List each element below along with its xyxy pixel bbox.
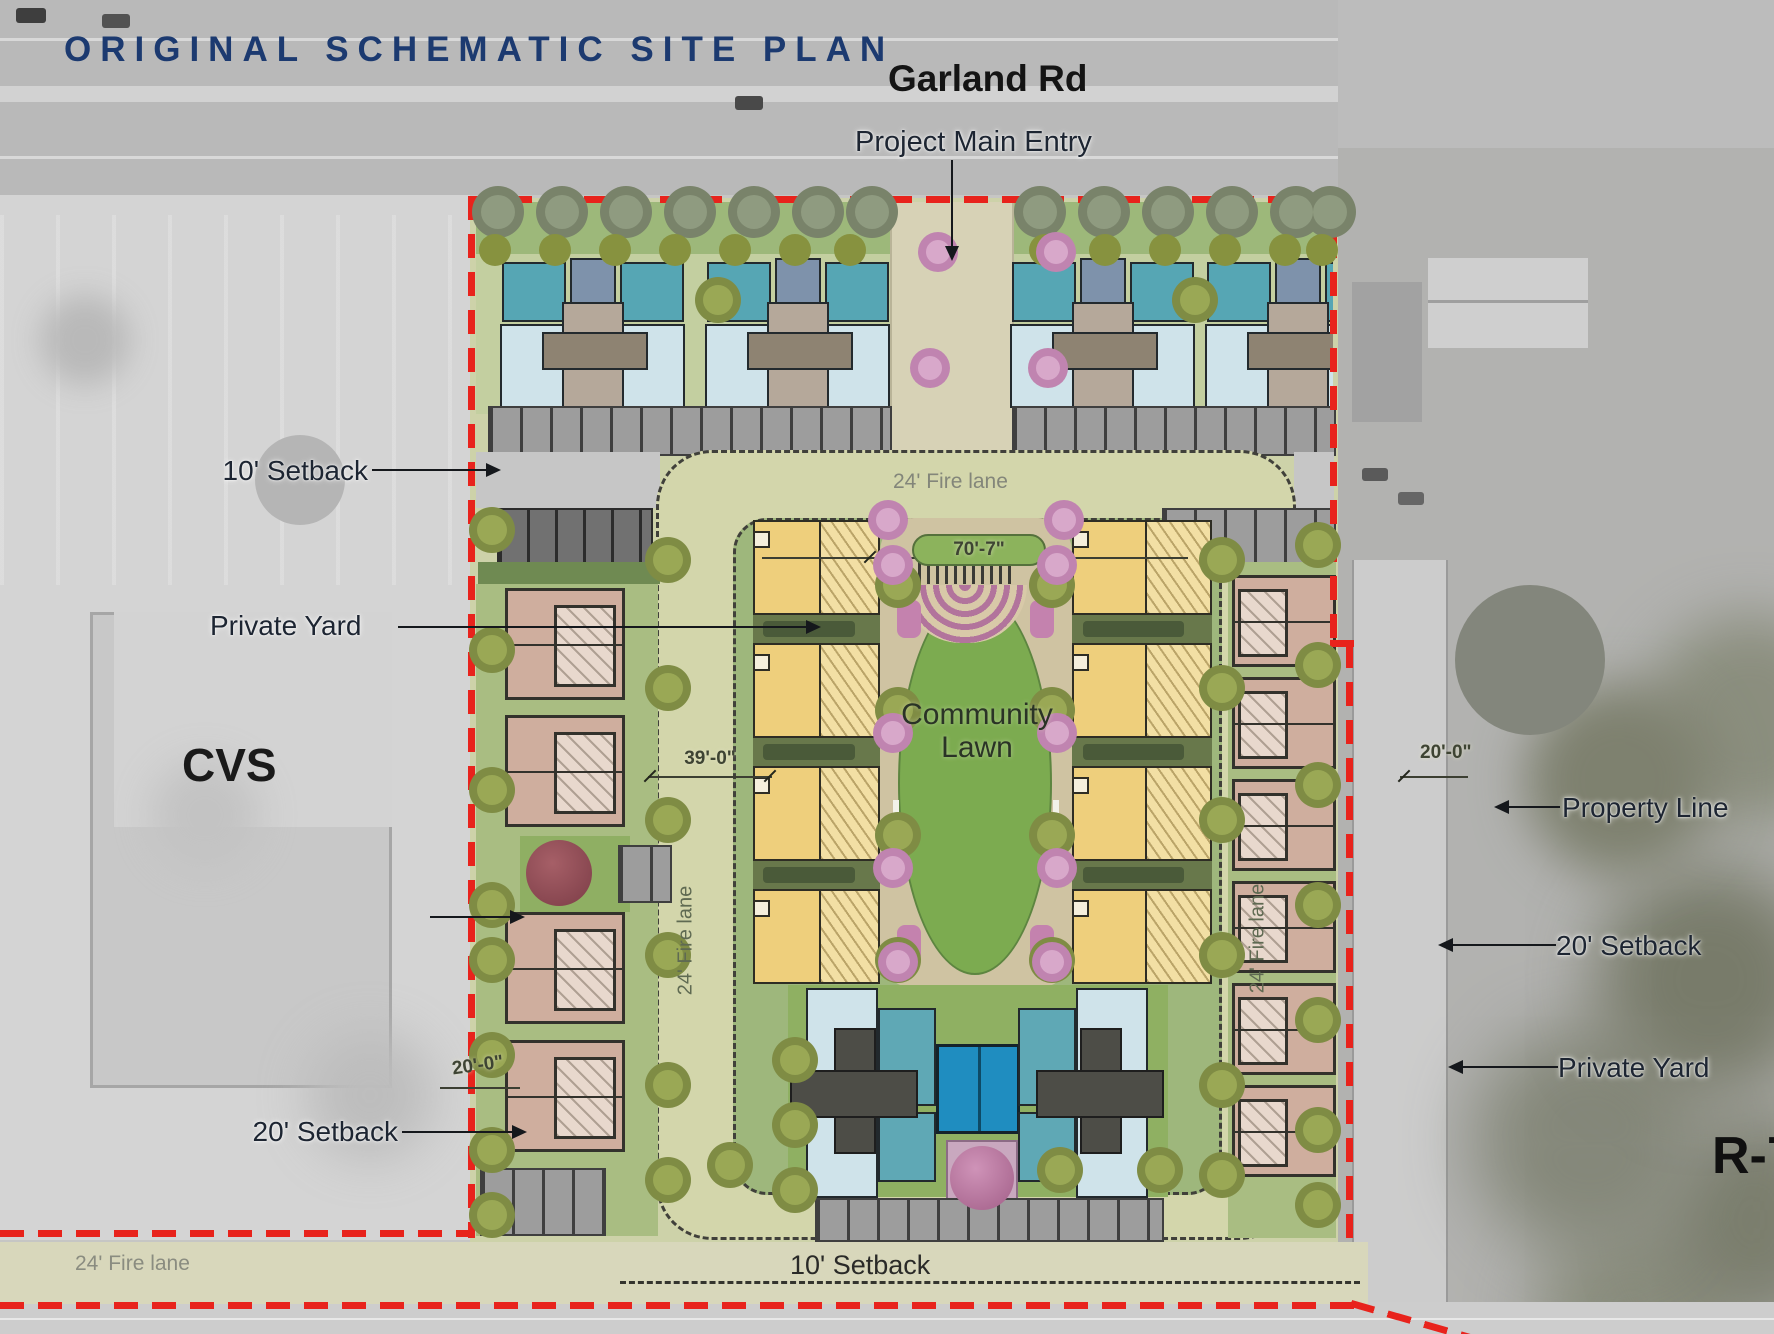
duplex-unit	[1232, 779, 1336, 871]
property-line-label: Property Line	[1562, 792, 1729, 824]
tree-icon-highlight	[477, 515, 507, 545]
arrow-head	[512, 1125, 527, 1139]
car-icon	[1362, 468, 1388, 481]
car-icon	[1398, 492, 1424, 505]
duplex-unit	[1232, 575, 1336, 667]
duplex-unit	[1232, 677, 1336, 769]
private-yard-right-label: Private Yard	[1558, 1052, 1709, 1084]
zoning-r7-label: R-7	[1712, 1126, 1774, 1186]
leader-line	[402, 1131, 512, 1133]
flower-bed	[897, 600, 921, 638]
fire-lane-right-vertical-label: 24' Fire lane	[1247, 859, 1270, 1019]
property-line-red	[470, 196, 1338, 203]
setback-right-dimension: 20'-0"	[1420, 742, 1472, 764]
drive-aisle	[476, 452, 660, 508]
bottom-fire-lane-strip	[0, 1242, 1368, 1304]
leader-line	[1462, 1066, 1558, 1068]
flowering-tree-icon	[950, 1146, 1014, 1210]
car-icon	[16, 8, 46, 23]
arrow-head	[806, 620, 821, 634]
flower-bed	[897, 925, 921, 963]
car-icon	[735, 96, 763, 110]
setback-20-right-label: 20' Setback	[1556, 930, 1701, 962]
amenity-building	[1018, 1112, 1076, 1182]
community-lawn-oval	[898, 592, 1052, 975]
property-line-red	[0, 1302, 1368, 1309]
amenity-building	[878, 1112, 936, 1182]
aerial-parking-stripes	[0, 215, 460, 585]
flower-bed	[1030, 600, 1054, 638]
page-title: ORIGINAL SCHEMATIC SITE PLAN	[64, 30, 984, 70]
cvs-label: CVS	[182, 738, 277, 792]
aerial-right-vegetation	[1455, 585, 1605, 735]
drive-aisle	[1294, 452, 1334, 508]
parking-row	[497, 508, 653, 568]
hedge	[478, 562, 660, 584]
site-plan-screenshot: 70'-7" 39'-0" ORIGINAL SCHEMATIC SITE PL…	[0, 0, 1774, 1334]
aerial-bottom-curb	[0, 1318, 1774, 1320]
leader-line	[372, 469, 486, 471]
aerial-right-barn	[1428, 258, 1588, 348]
dimension-line	[1400, 776, 1468, 778]
leader-line	[1508, 806, 1560, 808]
project-main-entry-label: Project Main Entry	[855, 126, 1092, 159]
aerial-right-barn-ridge	[1428, 300, 1588, 303]
fire-lane-top-label: 24' Fire lane	[893, 470, 1008, 494]
private-yard-strip	[753, 738, 880, 766]
community-lawn-label: Community Lawn	[898, 698, 1056, 764]
bench	[893, 800, 899, 824]
townhome-building	[1010, 258, 1195, 410]
leader-line	[398, 626, 806, 628]
townhome-yellow	[1072, 766, 1212, 861]
red-tree-icon	[526, 840, 592, 906]
private-yard-strip	[753, 861, 880, 889]
lawn-width-dimension: 70'-7"	[912, 539, 1046, 561]
townhome-building	[705, 258, 890, 410]
parking-row	[480, 1168, 606, 1236]
dimension-arrow-line	[430, 916, 514, 918]
parking-row	[1012, 406, 1336, 456]
setback-10-bottom-label: 10' Setback	[790, 1250, 930, 1281]
cvs-building-roof	[114, 612, 392, 827]
arrow-head	[510, 910, 525, 924]
arrow-head	[1448, 1060, 1463, 1074]
property-line-red	[468, 196, 475, 1238]
duplex-unit	[505, 588, 625, 700]
townhome-yellow	[1072, 889, 1212, 984]
parking-row	[488, 406, 892, 456]
bench	[1053, 800, 1059, 824]
community-lawn-line1: Community	[898, 698, 1056, 731]
townhome-yellow	[753, 520, 880, 615]
pool	[936, 1044, 1020, 1134]
aerial-right-road	[1352, 560, 1448, 1334]
leader-line	[1452, 944, 1556, 946]
arrow-head	[1438, 938, 1453, 952]
fire-lane-left-vertical-label: 24' Fire lane	[675, 861, 698, 1021]
duplex-unit	[1232, 1085, 1336, 1177]
arrow-head	[1494, 800, 1509, 814]
townhome-building	[500, 258, 685, 410]
townhome-yellow	[1072, 643, 1212, 738]
setback-dashed-line	[620, 1281, 1360, 1284]
private-yard-strip	[1072, 615, 1212, 643]
hedge-tree-icon	[479, 234, 511, 266]
setback-20-bottom-left-label: 20' Setback	[218, 1116, 398, 1148]
townhome-yellow	[753, 889, 880, 984]
townhome-building	[1205, 258, 1333, 410]
amenity-core	[834, 1028, 876, 1154]
dimension-line	[440, 1087, 520, 1089]
townhome-yellow	[753, 766, 880, 861]
property-line-red	[0, 1230, 472, 1237]
aerial-right-road-top	[1338, 0, 1774, 148]
private-yard-strip	[1072, 861, 1212, 889]
entry-arrow-line	[951, 160, 953, 246]
fire-lane-bottom-left-label: 24' Fire lane	[75, 1252, 190, 1276]
setback-10-left-label: 10' Setback	[188, 455, 368, 487]
duplex-unit	[505, 912, 625, 1024]
street-tree-icon-highlight	[481, 195, 515, 229]
fire-lane-spacing-dimension: 39'-0"	[655, 748, 765, 770]
flower-bed	[1030, 925, 1054, 963]
arrow-head	[486, 463, 501, 477]
private-yard-left-label: Private Yard	[210, 610, 361, 642]
community-lawn-line2: Lawn	[898, 731, 1056, 764]
parking-pad	[618, 845, 672, 903]
amenity-core	[1080, 1028, 1122, 1154]
duplex-unit	[505, 715, 625, 827]
property-line-red	[1346, 644, 1353, 1244]
car-icon	[102, 14, 130, 28]
townhome-yellow	[753, 643, 880, 738]
townhome-yellow	[1072, 520, 1212, 615]
property-line-red	[1330, 196, 1337, 644]
private-yard-strip	[1072, 738, 1212, 766]
aerial-right-building	[1352, 282, 1422, 422]
dimension-line	[648, 776, 772, 778]
entry-arrow-head	[945, 246, 959, 261]
garland-rd-label: Garland Rd	[888, 58, 1087, 100]
